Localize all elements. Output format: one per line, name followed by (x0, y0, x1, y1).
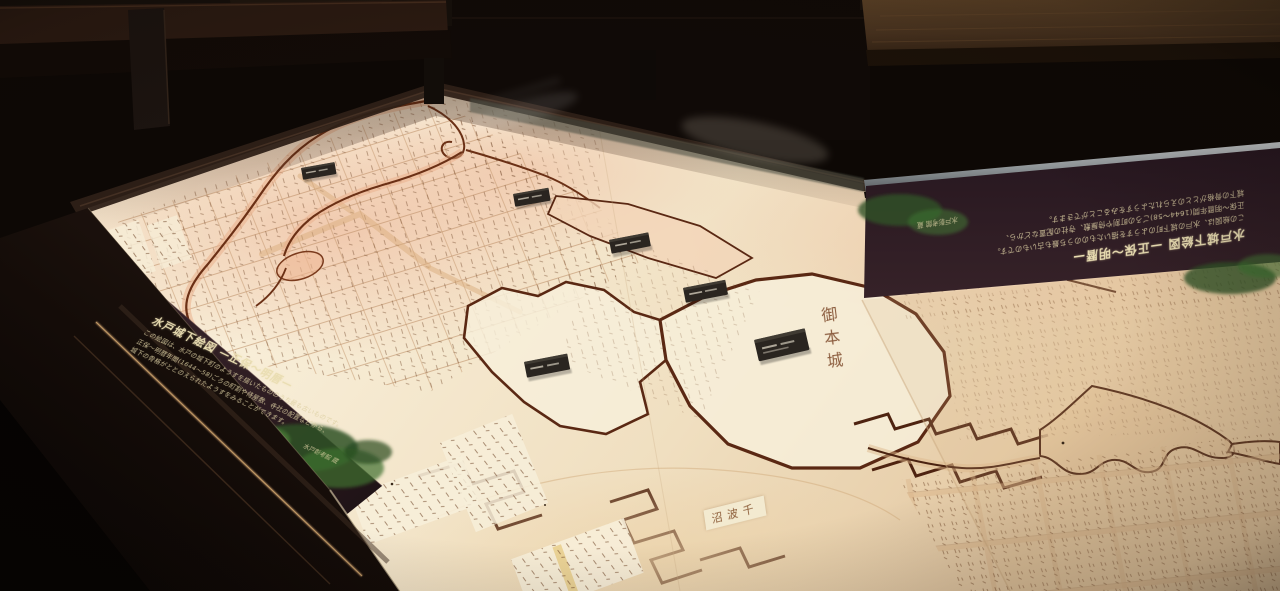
wood-beam-right (860, 0, 1280, 66)
case-post (424, 58, 444, 104)
case-post (630, 50, 656, 100)
bench-leg (128, 8, 170, 130)
exhibit-scene (0, 0, 1280, 591)
museum-exhibit-photo: 水戸城下絵図 —正保〜明暦— この絵図は、水戸の城下町のようすを描いたもののうち… (0, 0, 1280, 591)
